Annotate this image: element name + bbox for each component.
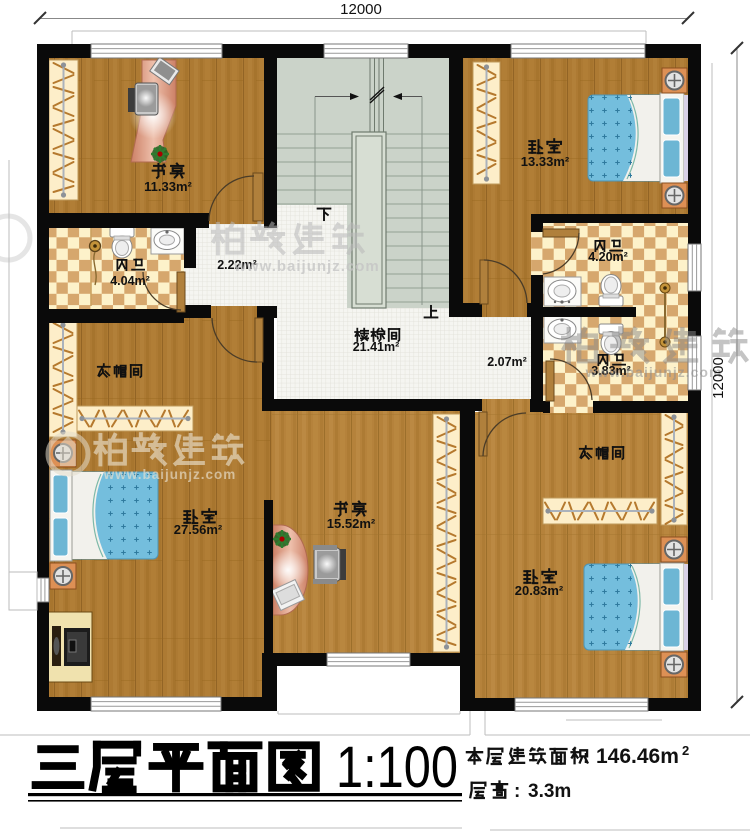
svg-text::: : (583, 747, 589, 768)
svg-text:www.baijunjz.com: www.baijunjz.com (585, 364, 723, 380)
svg-text:2: 2 (682, 743, 689, 758)
svg-text:2.07m²: 2.07m² (487, 355, 527, 369)
svg-text:www.baijunjz.com: www.baijunjz.com (233, 258, 379, 275)
svg-text:www.baijunjz.com: www.baijunjz.com (103, 467, 237, 482)
svg-text:15.52m²: 15.52m² (327, 516, 376, 531)
svg-text:4.04m²: 4.04m² (110, 274, 150, 288)
svg-text:20.83m²: 20.83m² (515, 583, 564, 598)
svg-text:12000: 12000 (340, 1, 382, 18)
svg-text:13.33m²: 13.33m² (521, 154, 570, 169)
svg-text:1:100: 1:100 (336, 735, 458, 800)
svg-text:11.33m²: 11.33m² (144, 179, 192, 194)
svg-text:21.41m²: 21.41m² (353, 340, 400, 354)
svg-text:146.46m: 146.46m (596, 745, 679, 768)
svg-text:27.56m²: 27.56m² (174, 522, 223, 537)
svg-text:12000: 12000 (710, 357, 727, 399)
svg-text:4.20m²: 4.20m² (588, 250, 628, 264)
svg-text::: : (514, 781, 520, 802)
svg-text:3.3m: 3.3m (528, 781, 571, 802)
